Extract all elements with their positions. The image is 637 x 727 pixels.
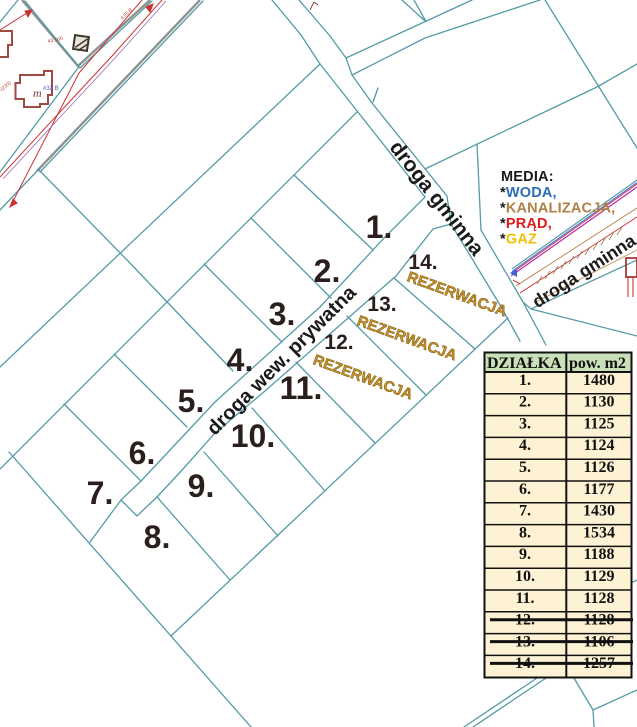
svg-text:1129: 1129 — [583, 568, 614, 585]
svg-text:4.: 4. — [227, 342, 254, 378]
svg-text:10.: 10. — [231, 418, 275, 454]
svg-text:6.: 6. — [129, 435, 156, 471]
svg-text:9.: 9. — [188, 468, 215, 504]
svg-text:1124: 1124 — [583, 437, 614, 454]
svg-text:1125: 1125 — [583, 415, 614, 432]
svg-text:6.: 6. — [519, 481, 531, 498]
svg-text:*GAZ: *GAZ — [500, 232, 537, 248]
svg-text:1430: 1430 — [583, 503, 615, 520]
svg-text:*PRĄD,: *PRĄD, — [500, 216, 552, 232]
svg-text:11.: 11. — [280, 370, 323, 406]
svg-text:1.: 1. — [366, 209, 393, 245]
svg-text:*WODA,: *WODA, — [500, 185, 557, 201]
svg-text:1534: 1534 — [583, 524, 615, 541]
svg-text:1480: 1480 — [583, 372, 615, 389]
svg-text:10.: 10. — [515, 568, 535, 585]
svg-text:8.: 8. — [144, 519, 171, 555]
svg-text:1126: 1126 — [583, 459, 614, 476]
svg-text:3.: 3. — [269, 296, 296, 332]
svg-text:MEDIA:: MEDIA: — [501, 169, 554, 185]
svg-text:11.: 11. — [515, 590, 534, 607]
svg-text:pow. m2: pow. m2 — [569, 355, 626, 372]
svg-text:2.: 2. — [314, 253, 341, 289]
svg-text:2.: 2. — [519, 394, 531, 411]
svg-text:5.: 5. — [519, 459, 531, 476]
svg-text:5.: 5. — [178, 383, 205, 419]
svg-text:1188: 1188 — [583, 546, 614, 563]
svg-text:1.: 1. — [519, 372, 531, 389]
svg-text:13.: 13. — [367, 293, 396, 316]
svg-text:4.: 4. — [519, 437, 531, 454]
svg-text:8.: 8. — [519, 524, 531, 541]
svg-text:9.: 9. — [519, 546, 531, 563]
svg-text:1130: 1130 — [583, 394, 614, 411]
svg-text:1177: 1177 — [583, 481, 614, 498]
svg-text:7.: 7. — [87, 475, 114, 511]
svg-text:12.: 12. — [324, 331, 353, 354]
svg-text:7.: 7. — [519, 503, 531, 520]
svg-text:3.: 3. — [519, 415, 531, 432]
svg-text:*KANALIZACJA,: *KANALIZACJA, — [500, 201, 615, 217]
svg-text:DZIAŁKA: DZIAŁKA — [487, 355, 562, 372]
svg-text:#32 B: #32 B — [43, 86, 59, 92]
svg-text:m: m — [33, 86, 42, 100]
svg-text:1128: 1128 — [583, 590, 614, 607]
